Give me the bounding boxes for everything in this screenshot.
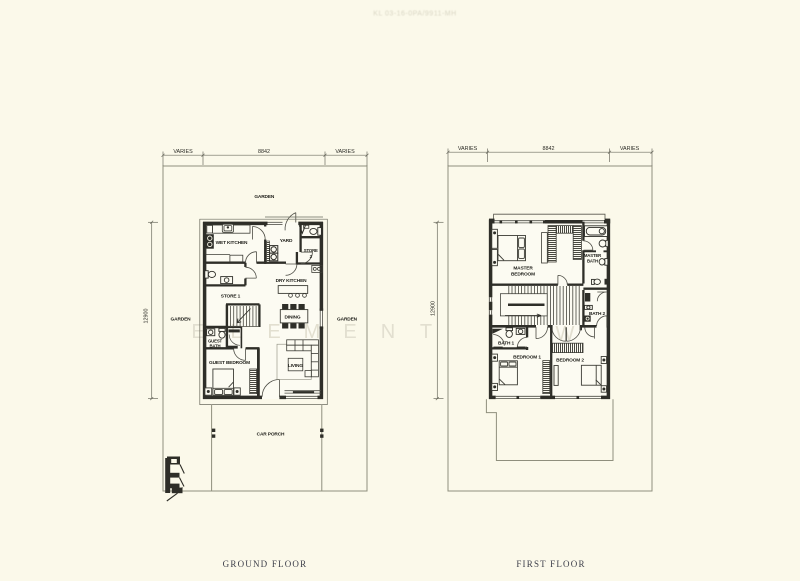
svg-text:12900: 12900	[431, 301, 437, 316]
svg-text:VARIES: VARIES	[620, 146, 640, 152]
svg-text:W: W	[556, 323, 575, 345]
svg-text:DINING: DINING	[285, 315, 301, 321]
svg-text:YARD: YARD	[280, 238, 293, 244]
svg-text:VARIES: VARIES	[458, 146, 478, 152]
svg-text:E: E	[343, 321, 356, 343]
svg-text:DRY KITCHEN: DRY KITCHEN	[276, 278, 308, 284]
svg-text:STORE: STORE	[304, 248, 318, 253]
svg-text:E: E	[191, 321, 204, 343]
svg-text:T: T	[420, 321, 432, 343]
svg-text:BATH 2: BATH 2	[589, 311, 606, 317]
svg-text:LIVING: LIVING	[288, 363, 304, 369]
svg-text:BATH: BATH	[587, 258, 598, 263]
svg-text:GARDEN: GARDEN	[171, 317, 192, 323]
svg-text:BEDROOM 1: BEDROOM 1	[513, 354, 541, 360]
svg-text:BEDROOM: BEDROOM	[511, 272, 535, 278]
svg-text:VARIES: VARIES	[335, 149, 355, 155]
svg-text:BATH 1: BATH 1	[498, 340, 515, 346]
svg-text:E: E	[267, 321, 280, 343]
svg-text:FIRST FLOOR: FIRST FLOOR	[516, 559, 585, 569]
svg-text:CAR PORCH: CAR PORCH	[257, 432, 285, 438]
svg-text:GROUND FLOOR: GROUND FLOOR	[223, 559, 308, 569]
svg-text:GUEST BEDROOM: GUEST BEDROOM	[209, 360, 250, 366]
svg-text:BATH: BATH	[209, 343, 220, 348]
svg-text:WET KITCHEN: WET KITCHEN	[216, 240, 248, 246]
svg-text:GARDEN: GARDEN	[254, 194, 275, 200]
svg-text:GARDEN: GARDEN	[337, 317, 358, 323]
svg-text:8842: 8842	[543, 146, 555, 152]
svg-text:12900: 12900	[144, 309, 150, 324]
svg-text:MASTER: MASTER	[513, 265, 533, 271]
svg-text:STORE 1: STORE 1	[221, 294, 241, 300]
svg-text:KL 03-16-0PA/9911-MH: KL 03-16-0PA/9911-MH	[373, 11, 456, 18]
svg-text:BEDROOM 2: BEDROOM 2	[556, 357, 584, 363]
svg-text:VARIES: VARIES	[173, 149, 193, 155]
svg-text:N: N	[381, 321, 395, 343]
svg-text:8842: 8842	[258, 149, 270, 155]
